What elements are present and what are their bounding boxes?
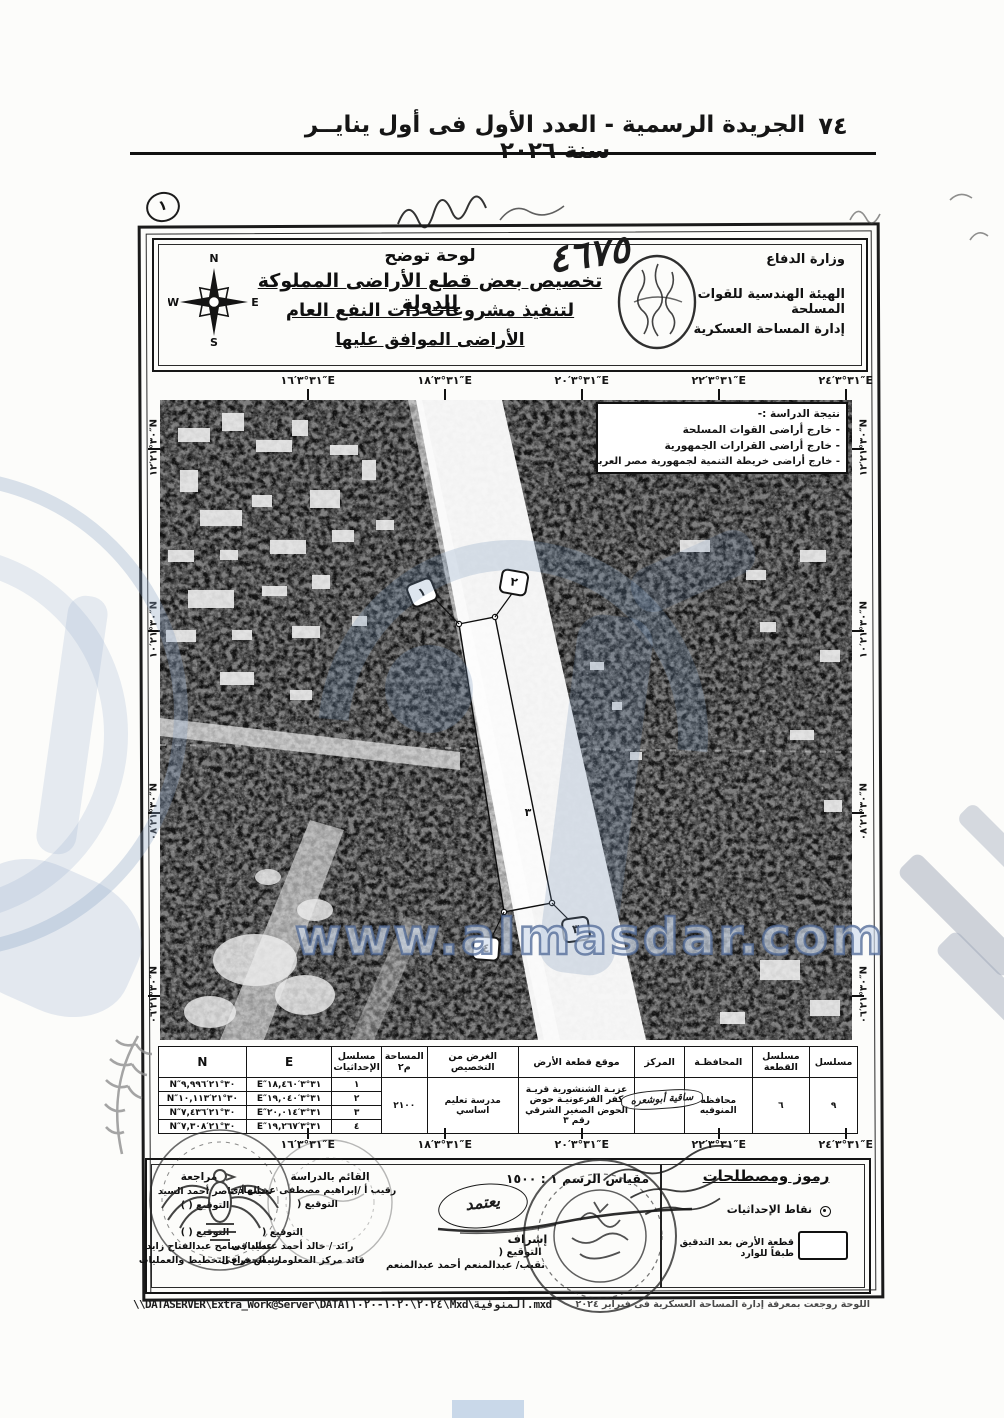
compass-e: E	[251, 296, 259, 309]
handwritten-scribble-top	[380, 190, 630, 240]
page-header-title: الجريدة الرسمية - العدد الأول فى أول ينا…	[300, 112, 810, 164]
header-coord-serial: مسلسل الإحداثيات	[332, 1047, 381, 1078]
compass-w: W	[168, 296, 179, 309]
header-governorate: المحافظـة	[684, 1047, 752, 1078]
tick-bottom-3	[581, 1128, 583, 1139]
study-result-item1: - خارج أراضى القوات المسلحة	[600, 422, 840, 438]
tick-right-4	[852, 995, 864, 997]
watermark-right-bar3	[956, 802, 1004, 878]
map-point-3-label: ٣	[571, 922, 580, 937]
title-line4: الأراضى الموافق عليها	[250, 330, 610, 350]
handwritten-circled-mark: ١	[143, 188, 183, 225]
page-number: ٧٤	[808, 112, 858, 140]
map-point-4-label: ٤	[482, 941, 490, 955]
coord-point-symbol	[820, 1206, 831, 1217]
study-result-box: نتيجة الدراسة :- - خارج أراضى القوات الم…	[596, 402, 848, 474]
watermark-left-blob	[0, 837, 161, 1038]
coord-label-top-e1: ٣١°٣′١٦″E	[258, 374, 358, 387]
cell-district: ساقية أبوشعره	[635, 1078, 685, 1134]
header-area: المساحة م٢	[381, 1047, 427, 1078]
coord-label-top-e3: ٣١°٣′٢٠″E	[532, 374, 632, 387]
tick-left-1	[148, 448, 160, 450]
tick-right-1	[852, 448, 864, 450]
review-stamp-faint	[250, 1130, 410, 1280]
watermark-right-bar1	[896, 851, 1004, 978]
cell-purpose: مدرسة تعليم اساسي	[427, 1078, 518, 1134]
tick-left-3	[148, 812, 160, 814]
header-rule	[130, 152, 876, 155]
coord-label-top-e2: ٣١°٣′١٨″E	[395, 374, 495, 387]
header-location: موقع قطعة الأرض	[518, 1047, 635, 1078]
compass-rose: N S E W	[168, 252, 260, 348]
compass-s: S	[210, 336, 218, 348]
header-serial: مسلسل	[810, 1047, 858, 1078]
map-point-tag-3: ٣	[560, 915, 591, 944]
wheat-ornament	[78, 1030, 158, 1160]
map-point-tag-2: ٢	[498, 568, 530, 597]
circled-mark-text: ١	[157, 197, 169, 215]
coord-label-bottom-e5: ٣١°٣′٢٤″E	[796, 1138, 896, 1151]
tick-right-2	[852, 630, 864, 632]
approval-pen-stroke	[430, 1195, 700, 1240]
tick-bottom-5	[845, 1128, 847, 1139]
plot-after-check-symbol	[798, 1231, 848, 1260]
satellite-map	[160, 400, 852, 1040]
watermark-bottom-blue-rect	[452, 1400, 524, 1418]
tick-bottom-4	[718, 1128, 720, 1139]
header-e: E	[246, 1047, 332, 1078]
map-plot-number: ٣	[520, 806, 536, 819]
compass-rose-graphic: N S E W	[168, 252, 260, 348]
ministry-of-defense-label: وزارة الدفاع	[735, 252, 845, 267]
footer-right-note: اللوحة روجعت بمعرفة إدارة المساحة العسكر…	[600, 1299, 870, 1310]
coord-label-bottom-e2: ٣١°٣′١٨″E	[395, 1138, 495, 1151]
coord-row-1-e: ٣١°٣′١٨,٤٦٠″E	[246, 1078, 332, 1092]
study-result-item2: - خارج أراضى القرارات الجمهورية	[600, 438, 840, 454]
coord-row-1-n: ٣٠°٢١′٩,٩٩٦″N	[159, 1078, 247, 1092]
gazette-page: الجريدة الرسمية - العدد الأول فى أول ينا…	[0, 0, 1004, 1418]
cell-governorate: محافظه المنوفيه	[684, 1078, 752, 1134]
study-result-item3: - خارج أراضى خريطة التنمية لجمهورية مصر …	[600, 454, 840, 470]
header-plot-serial: مسلسل القطعة	[752, 1047, 810, 1078]
coord-row-3-serial: ٣	[332, 1106, 381, 1120]
map-point-tag-4: ٤	[471, 935, 501, 962]
footer-file-path: \\DATASERVER\Extra_Work@Server\DATA٢٠٢٤\…	[133, 1298, 613, 1311]
map-point-2-label: ٢	[509, 574, 519, 589]
watermark-left-circle-inner	[0, 545, 128, 923]
cell-serial: ٩	[810, 1078, 858, 1134]
tick-right-3	[852, 812, 864, 814]
military-survey-dept-label: إدارة المساحة العسكرية	[690, 322, 845, 337]
coord-label-top-e4: ٣١°٣′٢٢″E	[669, 374, 769, 387]
map-point-1-label: ١	[416, 584, 428, 600]
satellite-map-image	[160, 400, 852, 1040]
table-row: ٩ ٦ محافظه المنوفيه ساقية أبوشعره عزبـة …	[159, 1078, 858, 1092]
header-district: المركز	[635, 1047, 685, 1078]
coord-row-1-serial: ١	[332, 1078, 381, 1092]
title-line3: لتنفيذ مشروعات ذات النفع العام	[250, 300, 610, 321]
corner-pen-marks	[830, 180, 1000, 270]
tick-bottom-2	[444, 1128, 446, 1139]
watermark-left-bar	[34, 593, 110, 856]
cell-plot-serial: ٦	[752, 1078, 810, 1134]
cell-location: عزبـة الشنشورية قريـة كفر الفرعونيـة حوض…	[518, 1078, 635, 1134]
header-purpose: الغرض من التخصيص	[427, 1047, 518, 1078]
cell-area: ٢١٠٠	[381, 1078, 427, 1134]
table-header-row: مسلسل مسلسل القطعة المحافظـة المركز موقع…	[159, 1047, 858, 1078]
watermark-right-bar2	[934, 929, 1004, 1070]
header-n: N	[159, 1047, 247, 1078]
compass-n: N	[209, 252, 218, 265]
tick-left-4	[148, 995, 160, 997]
coord-label-top-e5: ٣١°٣′٢٤″E	[796, 374, 896, 387]
coord-row-2-e: ٣١°٣′١٩,٠٤٠″E	[246, 1092, 332, 1106]
tick-left-2	[148, 630, 160, 632]
coord-row-2-serial: ٢	[332, 1092, 381, 1106]
coord-row-2-n: ٣٠°٢١′١٠,١١٣″N	[159, 1092, 247, 1106]
study-result-title: نتيجة الدراسة :-	[600, 406, 840, 422]
